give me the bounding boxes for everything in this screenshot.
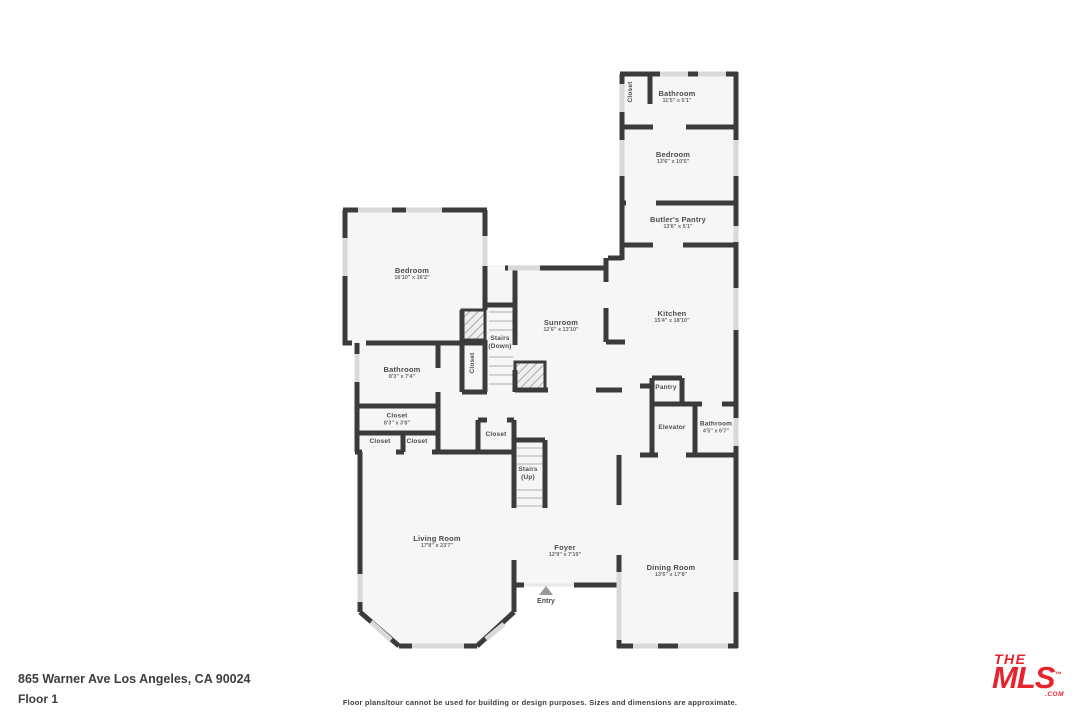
room-label-closet-main: Closet 8'3" x 3'8" (384, 413, 410, 428)
room-label-bathroom-small: Bathroom 4'5" x 6'7" (700, 421, 732, 436)
room-label-dining-room: Dining Room 13'6" x 17'8" (647, 563, 696, 579)
room-label-sunroom: Sunroom 12'6" x 13'10" (543, 318, 578, 334)
room-label-living-room: Living Room 17'8" x 23'7" (413, 534, 461, 550)
themls-logo-mls: MLS™ (992, 666, 1064, 691)
disclaimer-text: Floor plans/tour cannot be used for buil… (0, 698, 1080, 707)
trademark-symbol: ™ (1054, 672, 1061, 679)
room-label-foyer: Foyer 12'9" x 7'10" (549, 543, 581, 559)
room-label-bathroom-top: Bathroom 11'5" x 5'1" (658, 89, 695, 105)
property-address: 865 Warner Ave Los Angeles, CA 90024 (18, 672, 251, 686)
room-label-closet-top: Closet (627, 81, 635, 102)
entry-label: Entry (537, 598, 555, 605)
room-label-stairs-down: Stairs (Down) (488, 335, 511, 351)
room-label-stairs-up: Stairs (Up) (518, 466, 537, 482)
themls-logo: THE MLS™ .COM (992, 653, 1064, 699)
room-label-pantry: Pantry (655, 384, 676, 392)
room-label-closet-small-1: Closet (369, 438, 390, 446)
room-label-bedroom-left: Bedroom 16'10" x 16'2" (394, 266, 429, 282)
floor-plan-page: Closet Bathroom 11'5" x 5'1" Bedroom 13'… (0, 0, 1080, 720)
room-label-closet-mid: Closet (485, 431, 506, 439)
room-label-closet-small-2: Closet (406, 438, 427, 446)
room-label-elevator: Elevator (658, 424, 685, 432)
entry-arrow-icon (539, 586, 553, 595)
room-label-kitchen: Kitchen 15'4" x 18'10" (654, 309, 689, 325)
room-label-closet-hall: Closet (469, 352, 477, 373)
room-label-bedroom-right: Bedroom 13'6" x 10'5" (656, 150, 690, 166)
room-label-bathroom-left: Bathroom 8'3" x 7'4" (383, 365, 420, 381)
floor-plan-drawing (0, 0, 1080, 720)
room-label-butlers-pantry: Butler's Pantry 13'6" x 5'1" (650, 215, 706, 231)
